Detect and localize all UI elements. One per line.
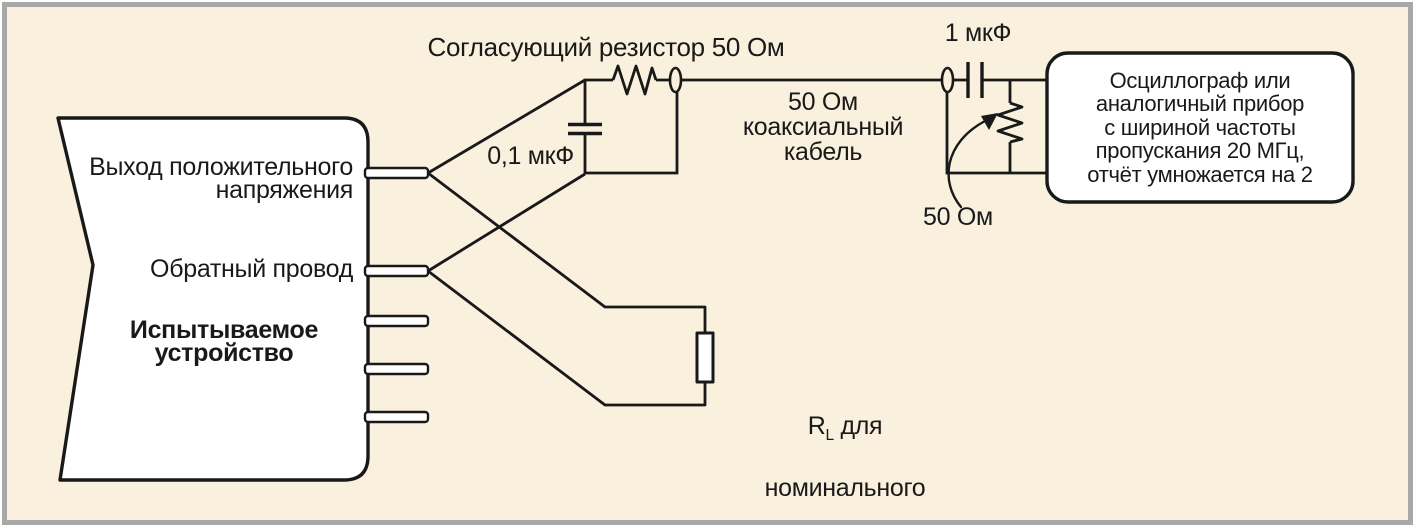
load-resistor-symbol: [697, 333, 713, 382]
pointer-arrow-icon: [949, 121, 985, 207]
coupling-capacitor-label: 1 мкФ: [918, 22, 1038, 45]
scope-input-wires: [946, 79, 1047, 175]
wire-return-to-network: [428, 174, 585, 271]
coax-cable-label: 50 Ом коаксиальный кабель: [723, 90, 923, 165]
wire-return-to-load: [428, 271, 705, 405]
matching-resistor-symbol: [613, 66, 656, 94]
terminating-resistor-label: 50 Ом: [898, 206, 1018, 229]
dut-pin-3: [365, 316, 428, 326]
matching-resistor-label: Согласующий резистор 50 Ом: [406, 36, 806, 59]
terminating-resistor-symbol: [998, 103, 1022, 142]
dut-pin-5: [365, 412, 428, 422]
measurement-loop-wires: [584, 79, 677, 175]
dut-name-label: Испытываемое устройство: [95, 319, 353, 365]
input-capacitor-label: 0,1 мкФ: [440, 145, 574, 168]
dut-pin-4: [365, 364, 428, 374]
input-capacitor-symbol: [568, 125, 602, 134]
load-resistor-label-line2: номинального: [725, 473, 965, 504]
dut-output-label: Выход положительного напряжения: [58, 156, 353, 202]
dut-return-label: Обратный провод: [58, 258, 353, 281]
dut-pin-positive: [365, 168, 428, 178]
wire-positive-to-load: [428, 173, 705, 333]
load-resistor-label-line1: RL для: [725, 411, 965, 442]
coax-connector-right-icon: [942, 68, 953, 92]
circuit-diagram: Согласующий резистор 50 Ом 0,1 мкФ 50 Ом…: [0, 0, 1415, 527]
coax-connector-left-icon: [670, 68, 681, 92]
dut-pin-return: [365, 266, 428, 276]
oscilloscope-label: Осциллограф или аналогичный прибор с шир…: [1052, 56, 1348, 199]
load-resistor-label: RL для номинального тока IRATED: [725, 380, 965, 527]
coupling-capacitor-symbol: [968, 62, 982, 98]
